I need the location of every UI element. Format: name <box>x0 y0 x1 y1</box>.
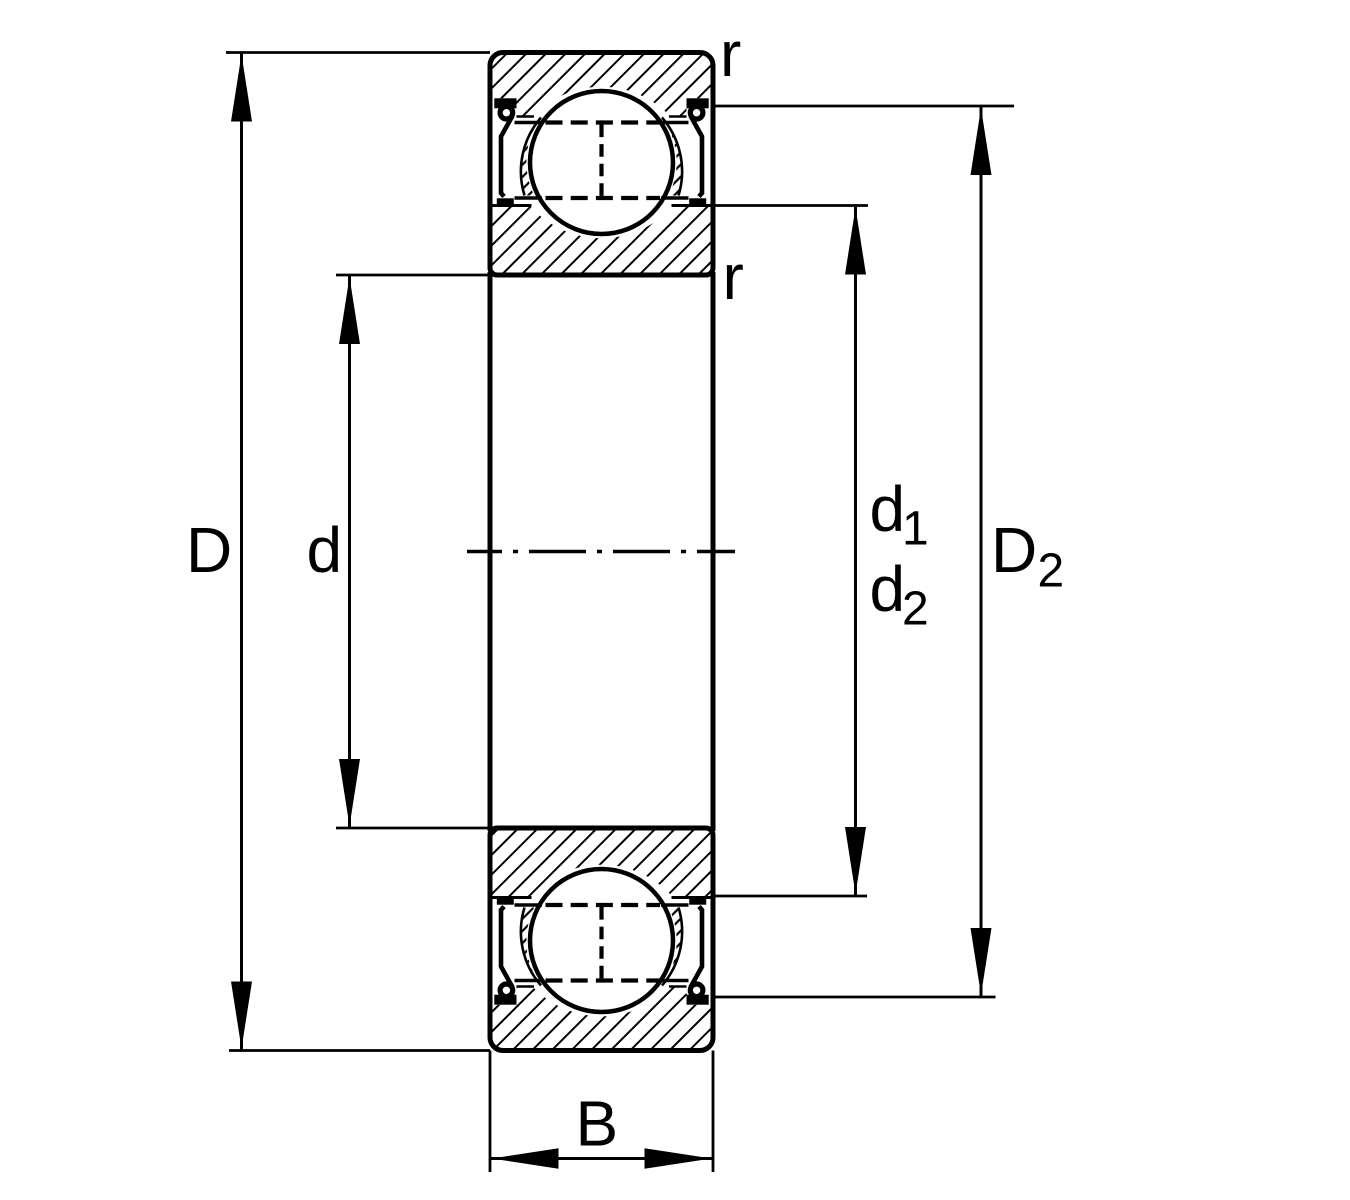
svg-text:D: D <box>991 514 1037 586</box>
svg-text:r: r <box>723 241 744 313</box>
svg-text:d: d <box>307 514 343 586</box>
svg-text:D: D <box>186 514 232 586</box>
svg-text:2: 2 <box>1038 545 1065 598</box>
svg-text:2: 2 <box>902 583 929 636</box>
svg-text:1: 1 <box>902 503 929 556</box>
svg-text:d: d <box>870 473 906 545</box>
svg-text:B: B <box>576 1088 619 1160</box>
svg-text:r: r <box>720 18 741 90</box>
svg-text:d: d <box>870 553 906 625</box>
